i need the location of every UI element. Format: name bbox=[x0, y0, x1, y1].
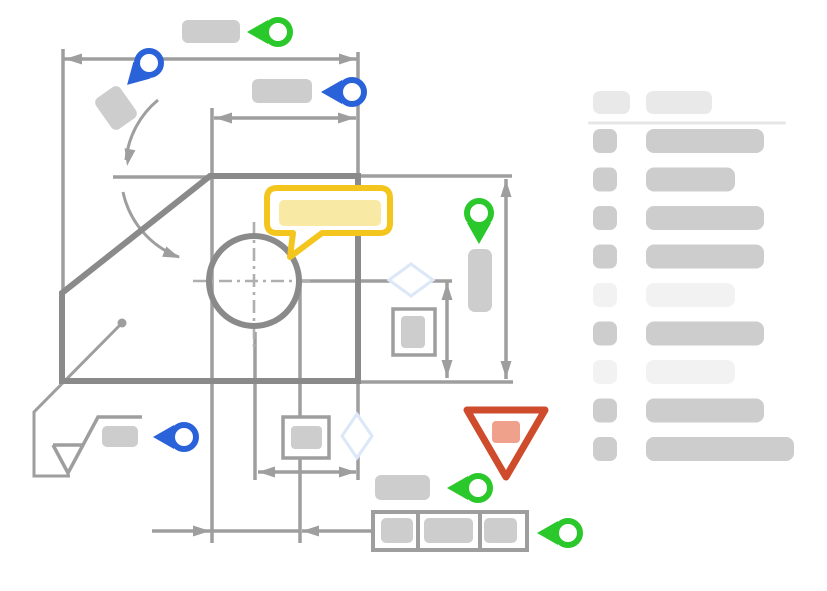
arrowhead bbox=[339, 467, 356, 478]
drawing-canvas bbox=[0, 0, 827, 591]
datum-symbol-box bbox=[283, 417, 329, 458]
dim-label-surface bbox=[102, 426, 138, 447]
list-item[interactable] bbox=[593, 206, 764, 230]
list-item[interactable] bbox=[593, 322, 764, 346]
list-item-text-bar bbox=[646, 437, 794, 461]
warning-triangle-icon[interactable] bbox=[467, 410, 545, 477]
list-item-icon bbox=[593, 206, 617, 230]
pin-surface-finish[interactable] bbox=[153, 425, 196, 449]
arrowhead bbox=[215, 113, 232, 124]
box-chip bbox=[401, 316, 425, 348]
arrowhead bbox=[442, 360, 453, 377]
dimension-hole-offset bbox=[152, 526, 374, 537]
dim-label-datum bbox=[375, 475, 430, 500]
pin-chamfer-angle[interactable] bbox=[119, 46, 166, 93]
arrowhead bbox=[501, 180, 512, 197]
pin-ring bbox=[340, 80, 364, 104]
arrowhead bbox=[501, 361, 512, 378]
list-item-text-bar bbox=[646, 168, 735, 192]
list-item-text-bar bbox=[646, 129, 764, 153]
pin-overall-height[interactable] bbox=[467, 201, 491, 244]
feature-control-frame[interactable] bbox=[373, 512, 527, 550]
warning-triangle-border bbox=[467, 410, 545, 477]
list-item[interactable] bbox=[593, 437, 794, 461]
list-item[interactable] bbox=[593, 360, 735, 384]
annotation-list-panel bbox=[588, 91, 794, 461]
pin-ring bbox=[466, 476, 490, 500]
list-item-icon bbox=[593, 168, 617, 192]
list-item-icon bbox=[593, 283, 617, 307]
list-item[interactable] bbox=[593, 129, 764, 153]
app-canvas bbox=[0, 0, 827, 591]
list-item-icon bbox=[593, 399, 617, 423]
list-item-text-bar bbox=[646, 245, 764, 269]
dim-label-overall-width bbox=[182, 20, 240, 43]
dim-label-height bbox=[468, 249, 492, 312]
annotation-list-rows bbox=[593, 129, 794, 461]
diamond-marker-icon bbox=[389, 264, 433, 296]
list-item[interactable] bbox=[593, 283, 735, 307]
list-item-text-bar bbox=[646, 283, 735, 307]
box-chip bbox=[291, 426, 322, 449]
pin-ring bbox=[172, 425, 196, 449]
list-item[interactable] bbox=[593, 245, 764, 269]
list-item-text-bar bbox=[646, 399, 764, 423]
dim-label-angle-card bbox=[93, 84, 139, 132]
list-item-text-bar bbox=[646, 360, 735, 384]
arrowhead bbox=[65, 54, 82, 65]
frame-cell-chip bbox=[484, 518, 517, 543]
list-item[interactable] bbox=[593, 168, 735, 192]
list-header-chip bbox=[646, 91, 712, 114]
pin-ring bbox=[556, 521, 580, 545]
list-divider bbox=[588, 122, 786, 125]
arrowhead bbox=[258, 467, 275, 478]
arrowhead bbox=[122, 148, 136, 167]
list-item-text-bar bbox=[646, 322, 764, 346]
list-item-icon bbox=[593, 322, 617, 346]
list-item-icon bbox=[593, 360, 617, 384]
pin-overall-width[interactable] bbox=[247, 20, 290, 44]
dimension-overall-width bbox=[64, 54, 357, 65]
comment-bubble-chip bbox=[279, 200, 381, 226]
arrowhead bbox=[302, 526, 319, 537]
dimension-inner-width bbox=[214, 113, 356, 124]
list-header-chip bbox=[593, 91, 630, 114]
list-item-icon bbox=[593, 245, 617, 269]
frame-cell-chip bbox=[424, 518, 473, 543]
surface-finish-callout bbox=[34, 319, 142, 477]
list-item-icon bbox=[593, 437, 617, 461]
pin-feature-control-frame[interactable] bbox=[537, 521, 580, 545]
dimension-feature-width bbox=[258, 467, 356, 478]
pin-ring bbox=[266, 20, 290, 44]
pin-datum-label[interactable] bbox=[447, 476, 490, 500]
warning-triangle-chip bbox=[492, 421, 520, 443]
dimension-partial-height bbox=[442, 282, 453, 378]
leader-dot bbox=[118, 319, 127, 328]
arrowhead bbox=[193, 526, 210, 537]
annotation-list-header bbox=[593, 91, 712, 114]
dimension-overall-height bbox=[501, 179, 512, 379]
dim-label-inner-width bbox=[252, 79, 312, 103]
diamond-marker-icon bbox=[342, 414, 372, 458]
frame-cell-chip bbox=[381, 518, 413, 543]
arrowhead bbox=[442, 283, 453, 300]
list-item-icon bbox=[593, 129, 617, 153]
pin-inner-width[interactable] bbox=[321, 80, 364, 104]
list-item[interactable] bbox=[593, 399, 764, 423]
arrowhead bbox=[338, 113, 355, 124]
pin-ring bbox=[467, 201, 491, 225]
list-item-text-bar bbox=[646, 206, 764, 230]
datum-symbol-box bbox=[393, 309, 435, 355]
arrowhead bbox=[339, 54, 356, 65]
